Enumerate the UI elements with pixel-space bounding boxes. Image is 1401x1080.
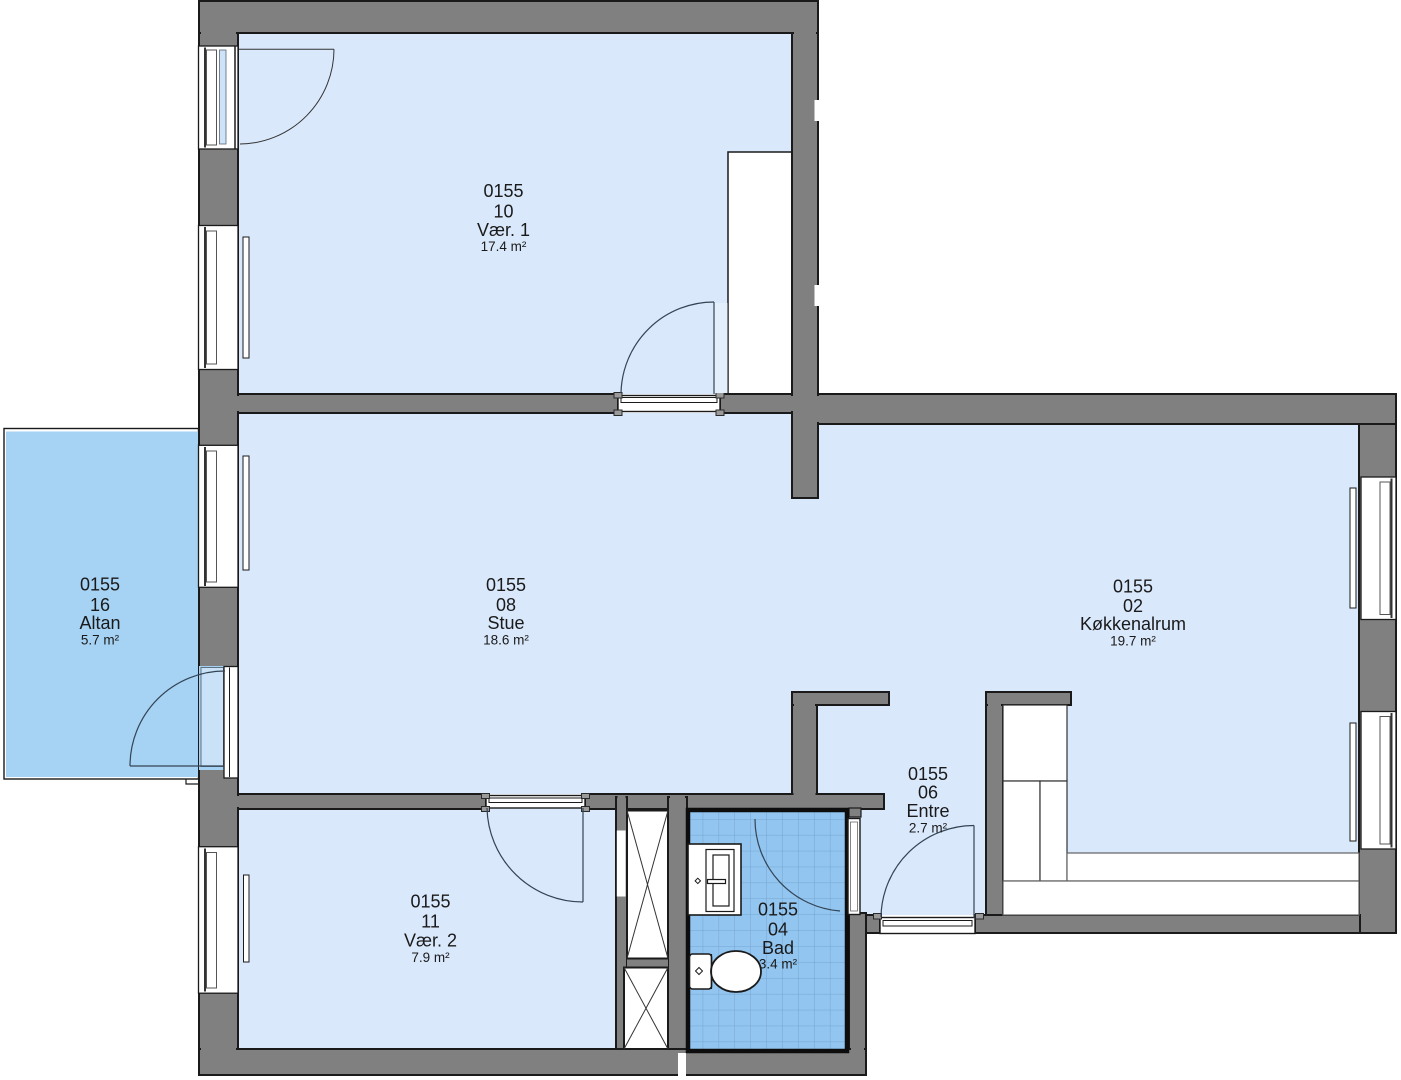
svg-text:02: 02 [1123,596,1143,616]
svg-text:Bad: Bad [762,938,794,958]
svg-text:08: 08 [496,595,516,615]
svg-text:2.7 m²: 2.7 m² [909,821,948,836]
svg-text:Altan: Altan [79,613,120,633]
svg-text:11: 11 [421,911,440,931]
svg-text:0155: 0155 [908,764,948,784]
svg-text:19.7 m²: 19.7 m² [1110,634,1156,649]
svg-text:7.9 m²: 7.9 m² [411,950,450,965]
svg-text:0155: 0155 [1113,576,1153,596]
svg-text:Entre: Entre [906,801,949,821]
svg-text:Vær. 1: Vær. 1 [477,220,530,240]
svg-text:10: 10 [493,201,513,221]
svg-text:0155: 0155 [758,899,798,919]
svg-text:3.4 m²: 3.4 m² [759,957,798,972]
svg-text:18.6 m²: 18.6 m² [483,633,529,648]
svg-text:17.4 m²: 17.4 m² [481,239,527,254]
svg-text:5.7 m²: 5.7 m² [81,633,120,648]
svg-text:06: 06 [918,782,938,802]
svg-text:0155: 0155 [486,575,526,595]
svg-text:0155: 0155 [410,891,450,911]
svg-text:04: 04 [768,919,788,939]
svg-text:Vær. 2: Vær. 2 [404,930,457,950]
svg-text:0155: 0155 [80,575,120,595]
svg-text:0155: 0155 [483,181,523,201]
svg-text:Køkkenalrum: Køkkenalrum [1080,614,1186,634]
svg-text:Stue: Stue [487,613,524,633]
